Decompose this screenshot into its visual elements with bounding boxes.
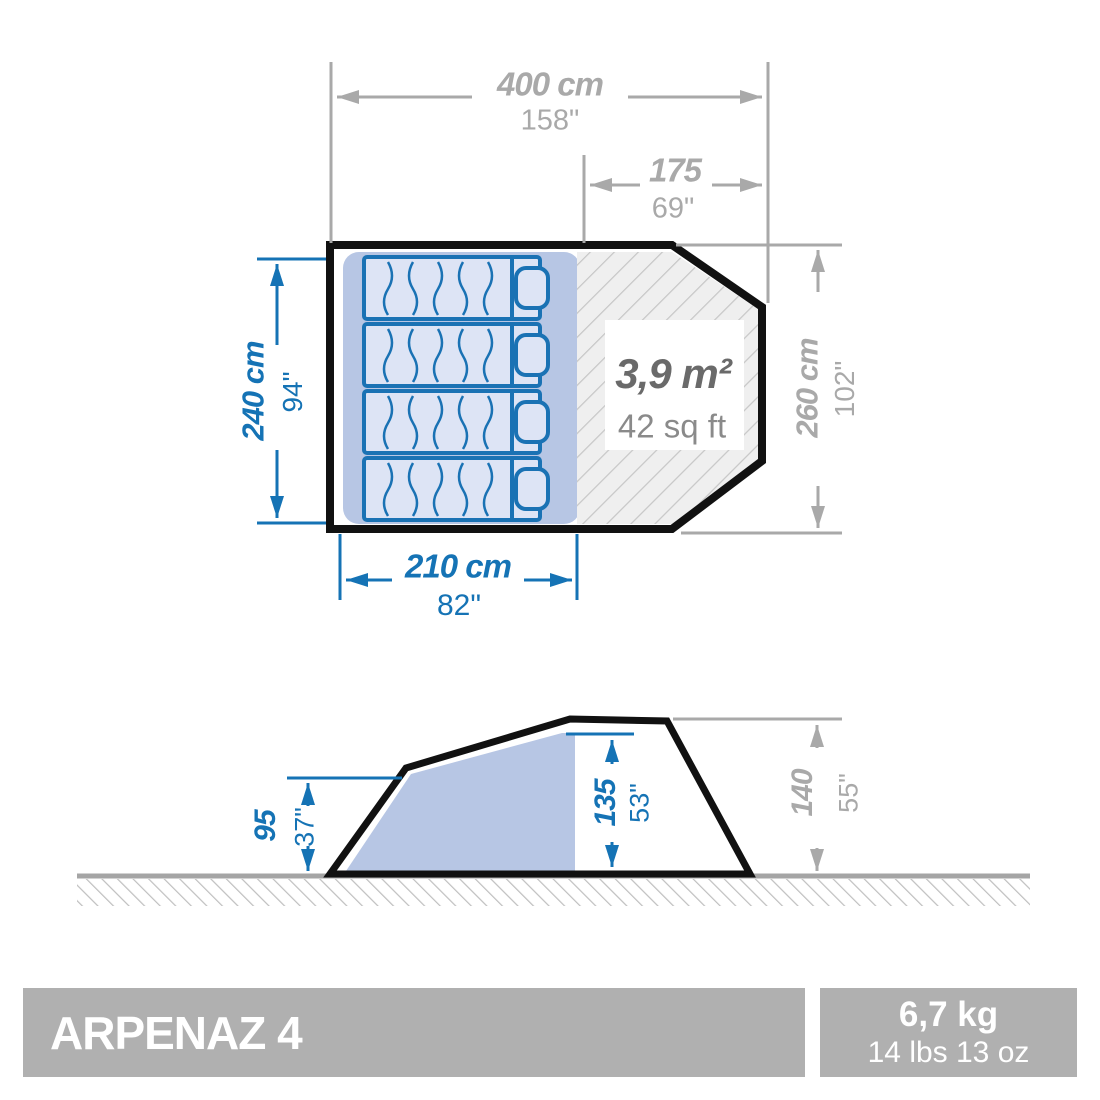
mattress bbox=[364, 458, 548, 520]
pillow bbox=[516, 335, 548, 375]
total-depth-cm-label: 260 cm bbox=[792, 338, 823, 437]
pillow bbox=[516, 268, 548, 308]
mattress bbox=[364, 257, 548, 319]
bedroom-width-cm-label: 210 cm bbox=[405, 550, 511, 583]
bedroom-depth-cm-label: 240 cm bbox=[238, 341, 269, 440]
diagram-graphics bbox=[0, 0, 1100, 1100]
tent-dimensions-diagram: 400 cm 158" 175 69" 240 cm 94" 260 cm 10… bbox=[0, 0, 1100, 1100]
mattress bbox=[364, 324, 548, 386]
total-width-cm-label: 400 cm bbox=[497, 68, 603, 101]
living-area-sqft-label: 42 sq ft bbox=[618, 410, 726, 443]
bedroom-width-inch-label: 82" bbox=[437, 591, 481, 621]
peak-height-inch-label: 55" bbox=[836, 773, 863, 813]
pillow bbox=[516, 402, 548, 442]
door-height-cm-label: 95 bbox=[251, 810, 281, 841]
weight-metric: 6,7 kg bbox=[899, 994, 998, 1035]
interior-height-cm-label: 135 bbox=[591, 779, 621, 826]
interior-height-inch-label: 53" bbox=[627, 783, 654, 823]
model-name-bar: ARPENAZ 4 bbox=[23, 988, 805, 1077]
model-name: ARPENAZ 4 bbox=[23, 1006, 302, 1060]
weight-bar: 6,7 kg 14 lbs 13 oz bbox=[820, 988, 1077, 1077]
door-height-inch-label: 37" bbox=[292, 807, 319, 847]
weight-imperial: 14 lbs 13 oz bbox=[868, 1035, 1030, 1071]
living-width-cm-label: 175 bbox=[649, 154, 701, 187]
peak-height-cm-label: 140 bbox=[788, 769, 818, 816]
living-area-m2-label: 3,9 m² bbox=[615, 353, 730, 395]
mattress bbox=[364, 391, 548, 453]
ground bbox=[77, 876, 1030, 906]
pillow bbox=[516, 469, 548, 509]
total-width-inch-label: 158" bbox=[521, 107, 580, 136]
living-width-inch-label: 69" bbox=[652, 195, 695, 224]
total-depth-inch-label: 102" bbox=[831, 361, 859, 418]
bedroom-depth-inch-label: 94" bbox=[279, 371, 307, 412]
